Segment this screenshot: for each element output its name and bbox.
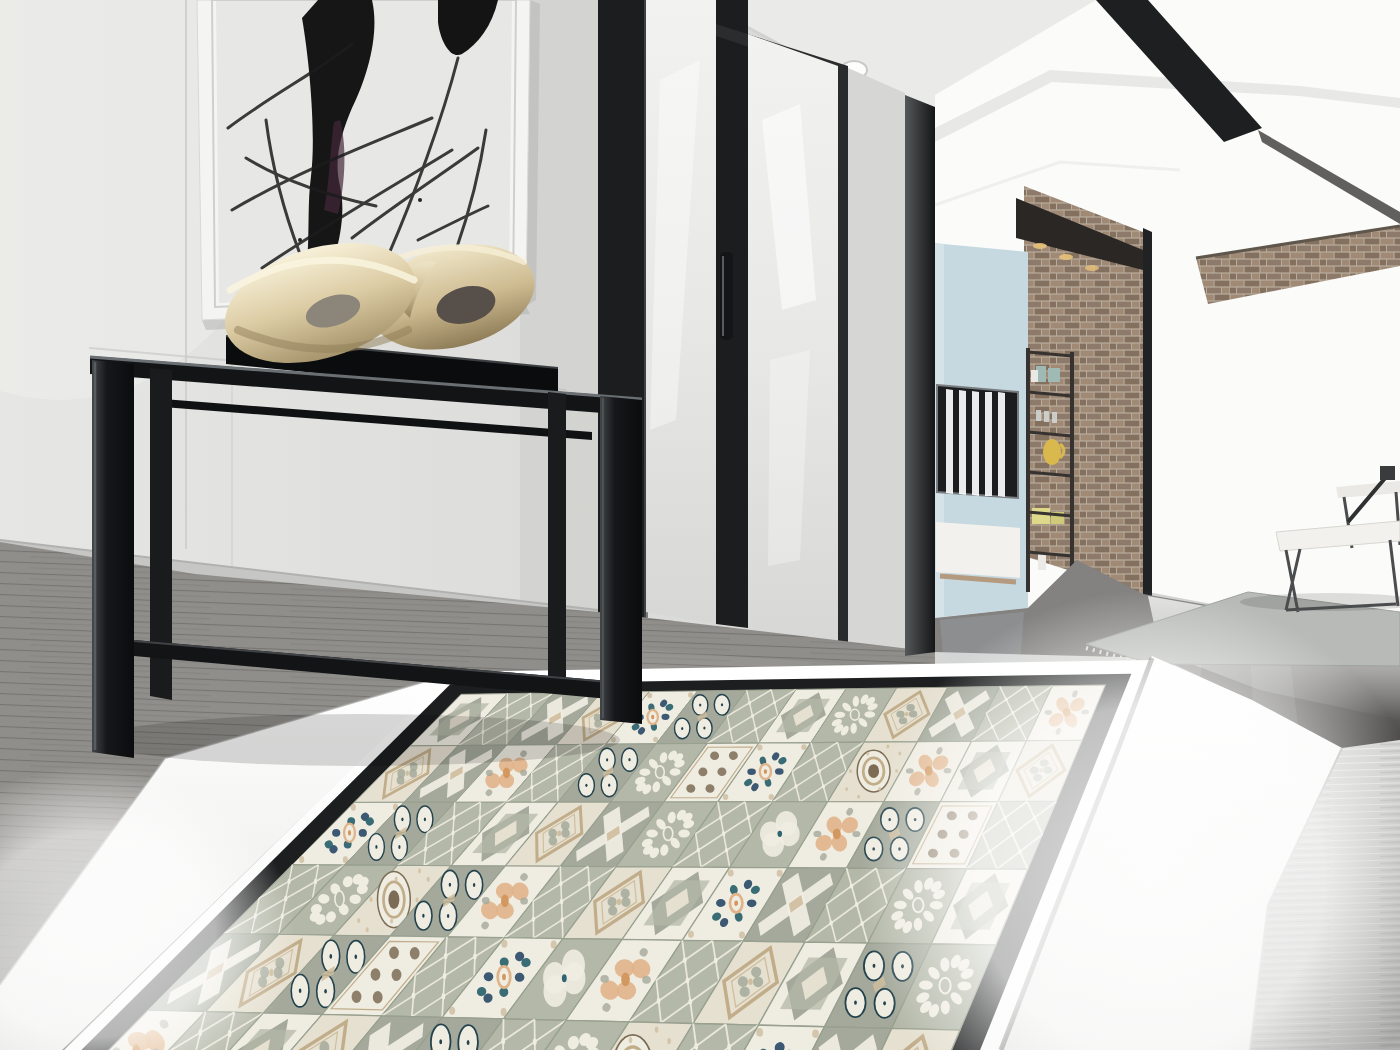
white-cabinet: [936, 522, 1020, 578]
wall-strip-right-of-door: [848, 68, 905, 656]
door-handle: [720, 252, 733, 340]
interior-render: [0, 0, 1400, 1050]
spotlight-glow: [1033, 243, 1047, 249]
yellow-box: [1032, 508, 1050, 524]
spotlight-glow: [1059, 254, 1073, 260]
window-frame: [1143, 228, 1152, 600]
yellow-jug: [1043, 439, 1061, 465]
scene-canvas: [0, 0, 1400, 1050]
partition-edge: [905, 95, 935, 656]
spotlight-glow: [1085, 265, 1099, 271]
door-frame-right: [838, 64, 848, 650]
